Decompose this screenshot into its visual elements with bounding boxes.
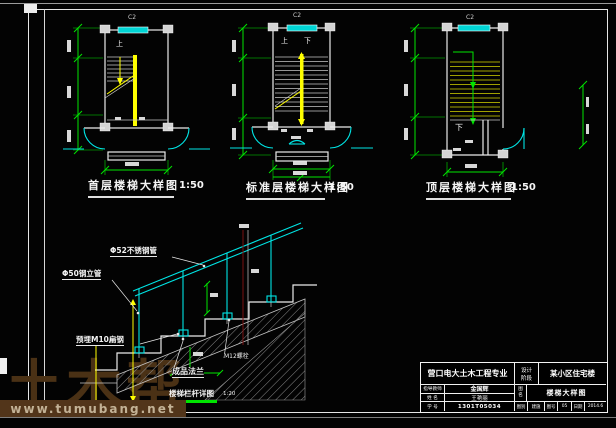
title-block: 营口电大土木工程专业 设计 阶段 某小区住宅楼 指导教师 金国辉 姓 名 王艳丽…	[420, 362, 608, 413]
plan3-title-underline	[426, 198, 511, 200]
drawing-name-label: 图名	[518, 387, 524, 400]
advisor-label: 指导教师	[423, 386, 441, 392]
footer-type-value: 建施	[532, 404, 541, 410]
stage-bottom-text: 阶段	[521, 374, 532, 382]
flight-divider	[133, 55, 137, 126]
railing-detail-drawing	[55, 213, 345, 413]
plan1-direction-arrow	[105, 57, 135, 98]
footer-type-label-cell: 图别	[515, 402, 528, 411]
footer-no-value: 05	[562, 404, 568, 409]
handrail-label: Φ52不锈钢管	[110, 247, 157, 257]
footer-type-value-cell: 建施	[528, 402, 545, 411]
titleblock-project-cell: 某小区住宅楼	[539, 363, 606, 385]
window-symbol	[287, 25, 317, 31]
watermark-url-bar: www.tumubang.net	[0, 400, 186, 417]
id-label-cell: 学 号	[421, 402, 445, 411]
post-label: Φ50钢立管	[62, 270, 101, 280]
footer-type-label: 图别	[517, 404, 526, 410]
plan2-title-underline	[246, 198, 325, 200]
name-value-cell: 王艳丽	[445, 394, 515, 403]
footer-date-value: 2014.6	[588, 404, 603, 409]
embed-plate-label: 预埋M10扁钢	[76, 336, 124, 346]
plan2-dimension-lines	[232, 24, 334, 181]
bolt-label: M12螺栓	[224, 354, 249, 360]
advisor-value: 金国辉	[470, 384, 488, 393]
plan3-drawing	[395, 12, 595, 187]
advisor-value-cell: 金国辉	[445, 385, 515, 394]
plan1-title-underline	[88, 196, 174, 198]
footer-no-label: 图号	[547, 404, 556, 410]
plan3-treads	[450, 62, 500, 116]
watermark-left-notch	[0, 358, 7, 374]
railing-detail-scale: 1:20	[223, 392, 235, 398]
plan3-down-label: 下	[455, 124, 463, 132]
titleblock-department-cell: 营口电大土木工程专业	[421, 363, 515, 385]
plan2-up-label: 上	[281, 38, 288, 45]
project-text: 某小区住宅楼	[550, 368, 595, 379]
plan1-stair-room	[100, 25, 173, 131]
id-value-cell: 1301T05034	[445, 402, 515, 411]
flange-label: 成品法兰	[172, 368, 204, 378]
drawing-name-cell: 楼梯大样图	[527, 385, 606, 402]
id-value: 1301T05034	[458, 404, 501, 410]
plan2-entrance-doors	[230, 127, 373, 161]
railing-detail-title: 楼梯栏杆详图	[169, 390, 214, 398]
footer-no-label-cell: 图号	[545, 402, 558, 411]
plan1-entrance-doors	[63, 128, 210, 160]
plan1-title: 首层楼梯大样图	[88, 180, 179, 191]
plan2-window-tag: C2	[293, 13, 301, 19]
plan3-dimension-lines	[404, 24, 589, 177]
drawing-name-text: 楼梯大样图	[547, 388, 587, 398]
footer-date-label: 日期	[574, 404, 583, 410]
footer-no-value-cell: 05	[558, 402, 572, 411]
plan3-scale: 1:50	[511, 183, 536, 193]
window-symbol	[118, 27, 148, 33]
plan1-drawing	[55, 12, 225, 184]
plan2-down-label: 下	[304, 38, 311, 45]
plan3-window-tag: C2	[466, 15, 474, 21]
plan3-title: 顶层楼梯大样图	[426, 182, 517, 193]
plan2-scale: 1:50	[329, 183, 354, 193]
window-symbol	[458, 25, 490, 31]
drawing-name-label-cell: 图名	[515, 385, 527, 402]
name-label-cell: 姓 名	[421, 394, 445, 403]
plan1-window-tag: C2	[128, 15, 136, 21]
titleblock-stage-cell: 设计 阶段	[515, 363, 539, 385]
plan3-exit-door	[503, 128, 524, 149]
department-text: 营口电大土木工程专业	[428, 368, 508, 379]
footer-date-value-cell: 2014.6	[585, 402, 606, 411]
name-value: 王艳丽	[471, 394, 488, 402]
plan2-stair-room	[268, 23, 335, 132]
plan3-stair-room	[442, 23, 508, 158]
name-label: 姓 名	[427, 395, 438, 401]
stage-top-text: 设计	[521, 366, 532, 374]
plan1-scale: 1:50	[179, 181, 204, 191]
plan1-up-label: 上	[116, 41, 123, 48]
advisor-label-cell: 指导教师	[421, 385, 445, 394]
footer-date-label-cell: 日期	[572, 402, 585, 411]
handrail	[133, 223, 303, 296]
sheet-top-edge	[0, 3, 616, 4]
id-label: 学 号	[427, 404, 438, 410]
watermark-url: www.tumubang.net	[10, 402, 175, 416]
cad-sheet: C2 上 首层楼梯大样图 1:50	[0, 0, 616, 428]
flight-divider	[300, 54, 304, 124]
frame-corner-block	[24, 4, 37, 13]
